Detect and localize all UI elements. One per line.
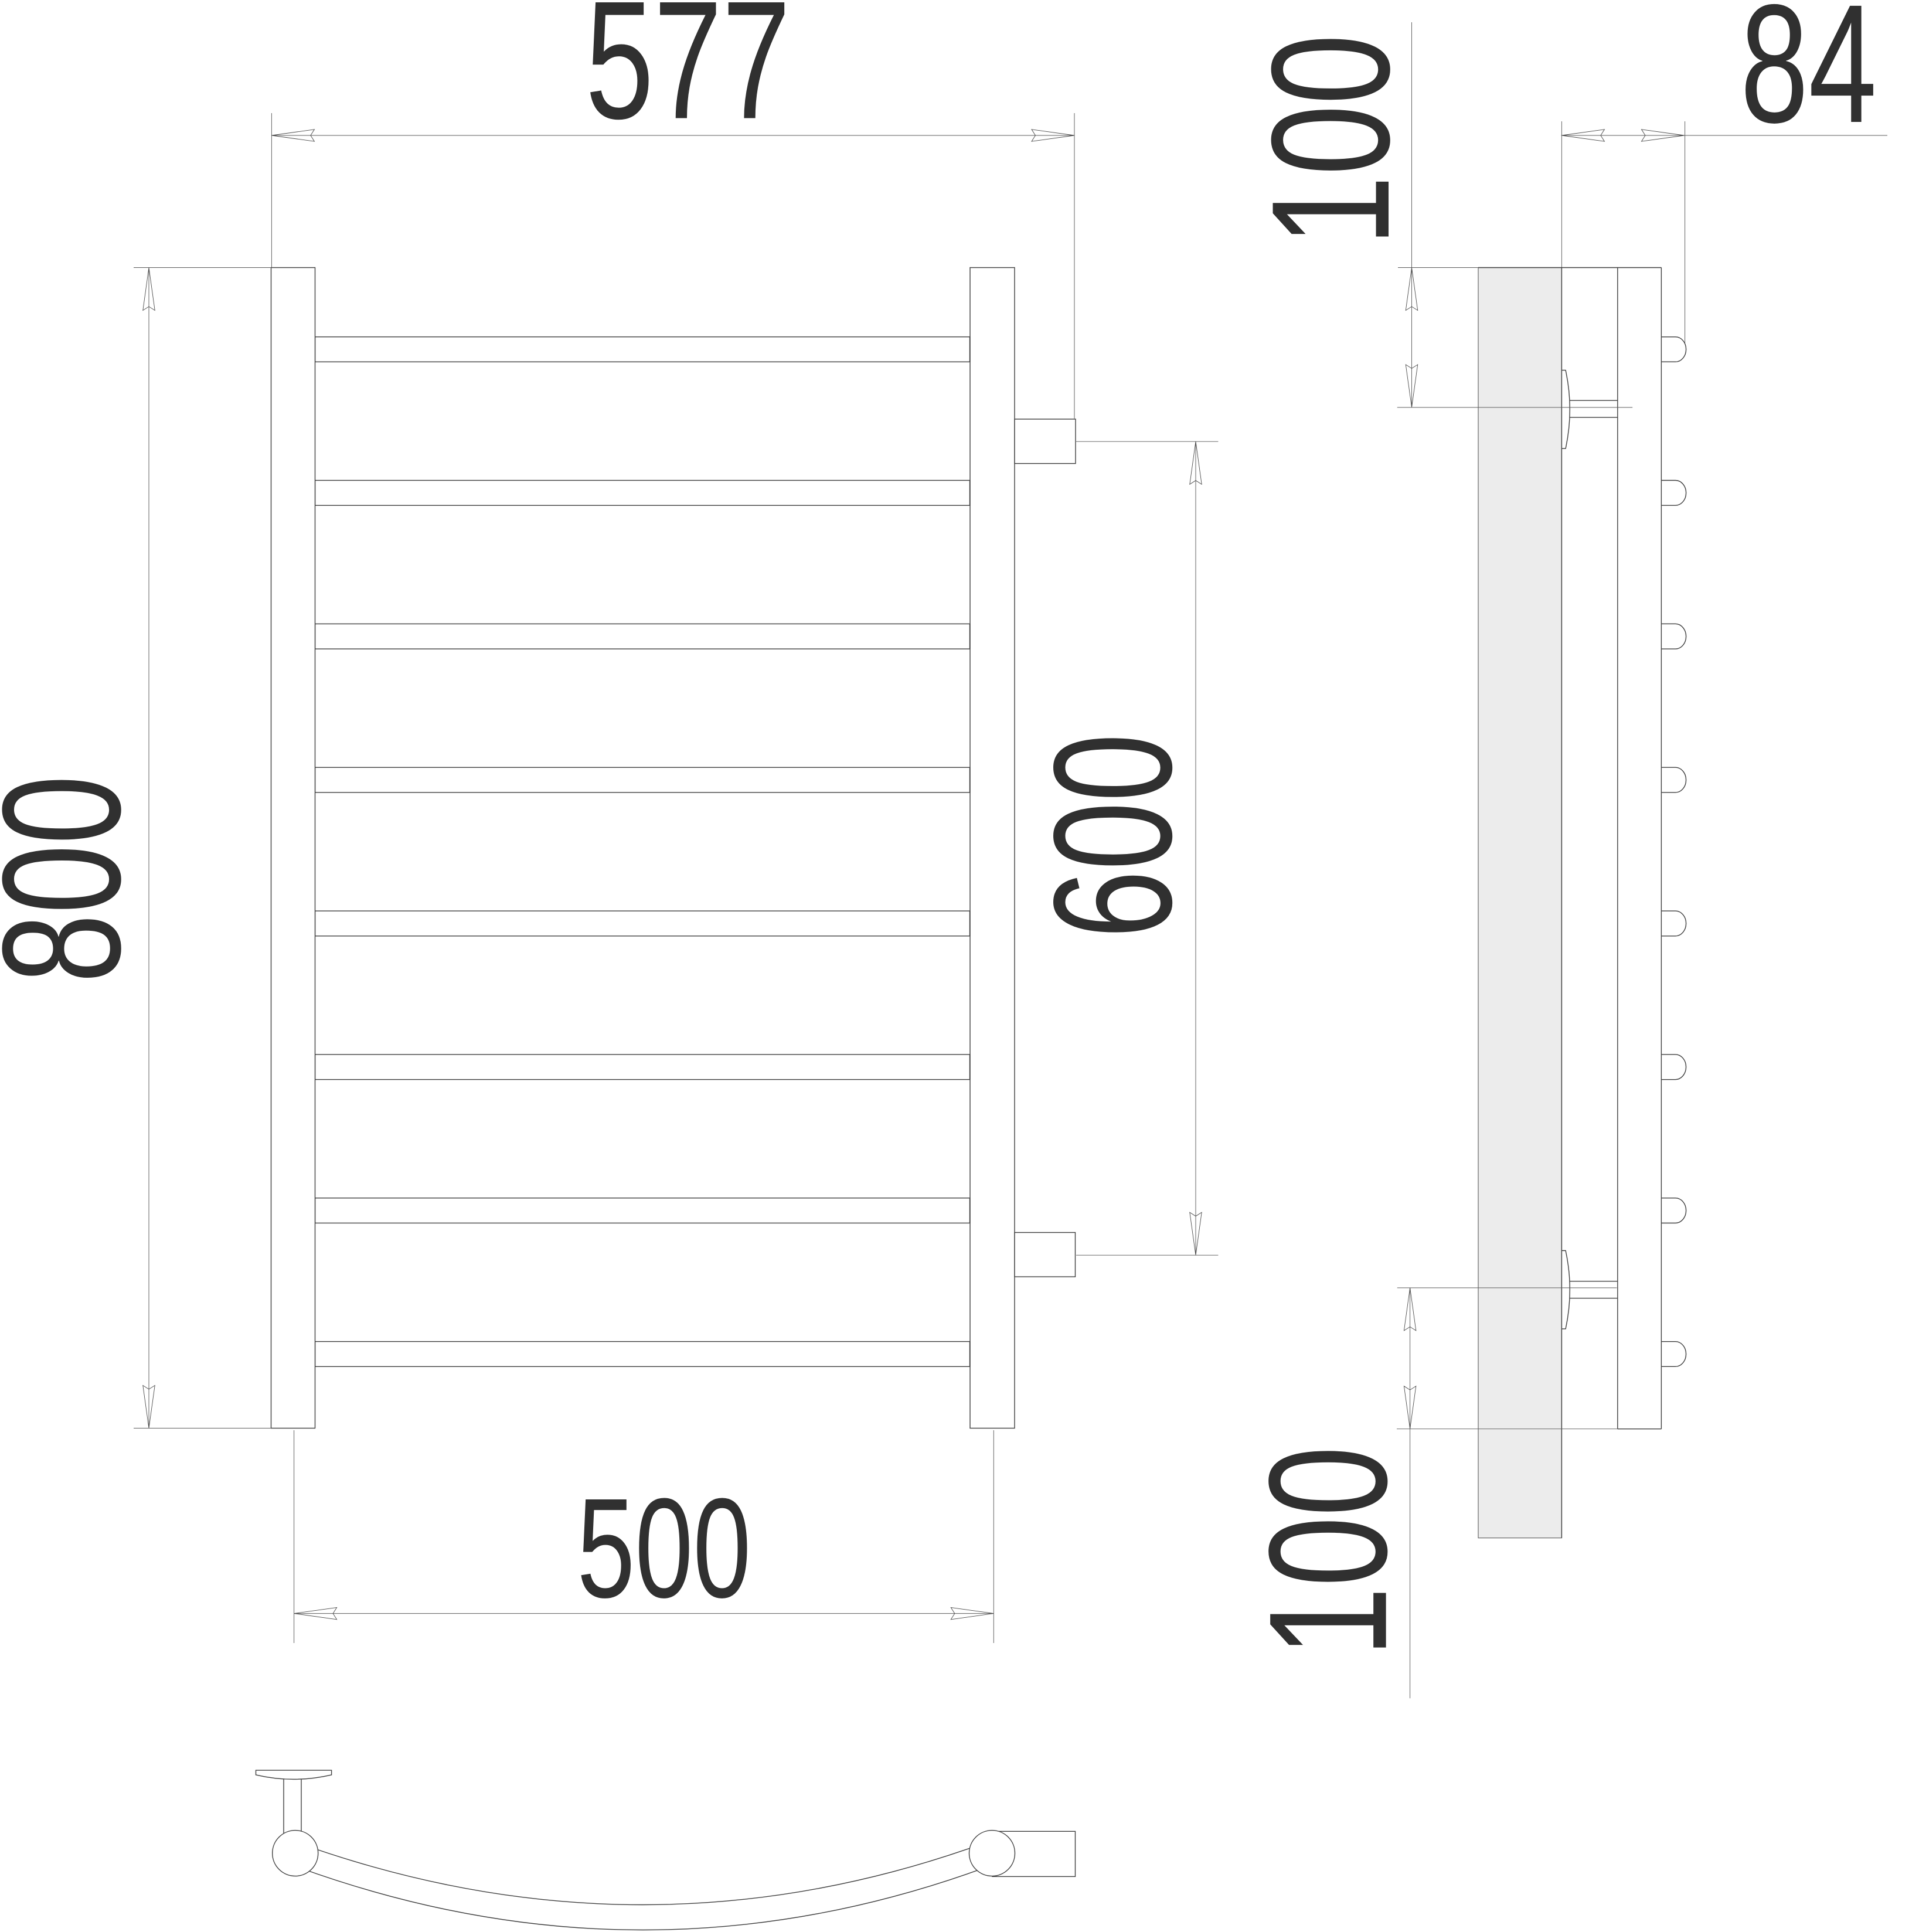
svg-text:600: 600 — [1018, 733, 1206, 938]
svg-text:500: 500 — [577, 1470, 751, 1628]
svg-text:577: 577 — [586, 0, 791, 154]
svg-text:100: 100 — [1236, 34, 1424, 246]
svg-text:100: 100 — [1234, 1446, 1422, 1657]
svg-text:84: 84 — [1740, 0, 1877, 158]
svg-text:800: 800 — [0, 775, 155, 983]
